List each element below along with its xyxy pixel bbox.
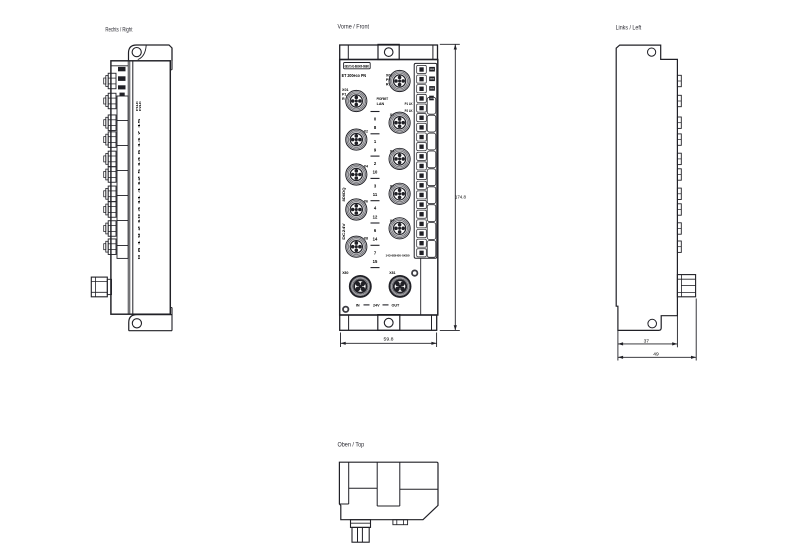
svg-text:P1 LK: P1 LK <box>405 102 414 106</box>
svg-text:X81: X81 <box>389 271 395 275</box>
svg-text:X01: X01 <box>342 88 349 92</box>
svg-text:12: 12 <box>373 214 378 219</box>
svg-text:0: 0 <box>374 117 377 122</box>
svg-text:0 8 1 9 2 10 3 11 4 12 5 13 6: 0 8 1 9 2 10 3 11 4 12 5 13 6 14 7 15 <box>137 118 141 260</box>
svg-text:P2LK: P2LK <box>138 100 142 111</box>
svg-text:Links / Left: Links / Left <box>616 25 642 32</box>
svg-text:1: 1 <box>374 139 377 144</box>
svg-text:Oben / Top: Oben / Top <box>338 441 365 448</box>
svg-text:P2 LK: P2 LK <box>405 109 414 113</box>
svg-text:174.8: 174.8 <box>455 194 466 200</box>
svg-text:R: R <box>342 97 345 101</box>
svg-text:24V: 24V <box>373 303 380 307</box>
svg-text:2: 2 <box>374 161 377 166</box>
svg-text:Rechts / Right: Rechts / Right <box>105 26 132 33</box>
svg-text:49: 49 <box>653 352 659 358</box>
svg-text:PROFINET: PROFINET <box>377 97 389 101</box>
svg-text:DC24V: DC24V <box>342 222 346 240</box>
svg-text:IN: IN <box>356 303 360 307</box>
svg-text:11: 11 <box>373 192 378 197</box>
svg-text:R: R <box>386 83 389 87</box>
svg-text:OUT: OUT <box>392 303 401 307</box>
svg-text:4: 4 <box>374 206 377 211</box>
svg-text:10: 10 <box>373 170 378 175</box>
svg-text:8DI/DQ: 8DI/DQ <box>342 187 346 202</box>
svg-text:3: 3 <box>374 183 377 188</box>
svg-text:14: 14 <box>373 237 378 242</box>
svg-text:6: 6 <box>374 228 377 233</box>
svg-text:9: 9 <box>374 147 377 152</box>
svg-text:15: 15 <box>373 259 378 264</box>
svg-text:6ES7141-6BG00-0BB0: 6ES7141-6BG00-0BB0 <box>345 65 369 69</box>
svg-text:P1: P1 <box>342 93 347 97</box>
svg-text:LAN: LAN <box>377 102 385 106</box>
svg-text:7: 7 <box>374 250 377 255</box>
svg-text:X80: X80 <box>342 271 348 275</box>
svg-text:143-6BH00-0XB0: 143-6BH00-0XB0 <box>386 253 410 257</box>
svg-text:ET 200eco PN: ET 200eco PN <box>342 73 367 79</box>
svg-text:Vorne / Front: Vorne / Front <box>338 24 370 31</box>
svg-text:59.8: 59.8 <box>384 336 394 342</box>
svg-text:37: 37 <box>644 338 650 344</box>
svg-text:8: 8 <box>374 125 377 130</box>
